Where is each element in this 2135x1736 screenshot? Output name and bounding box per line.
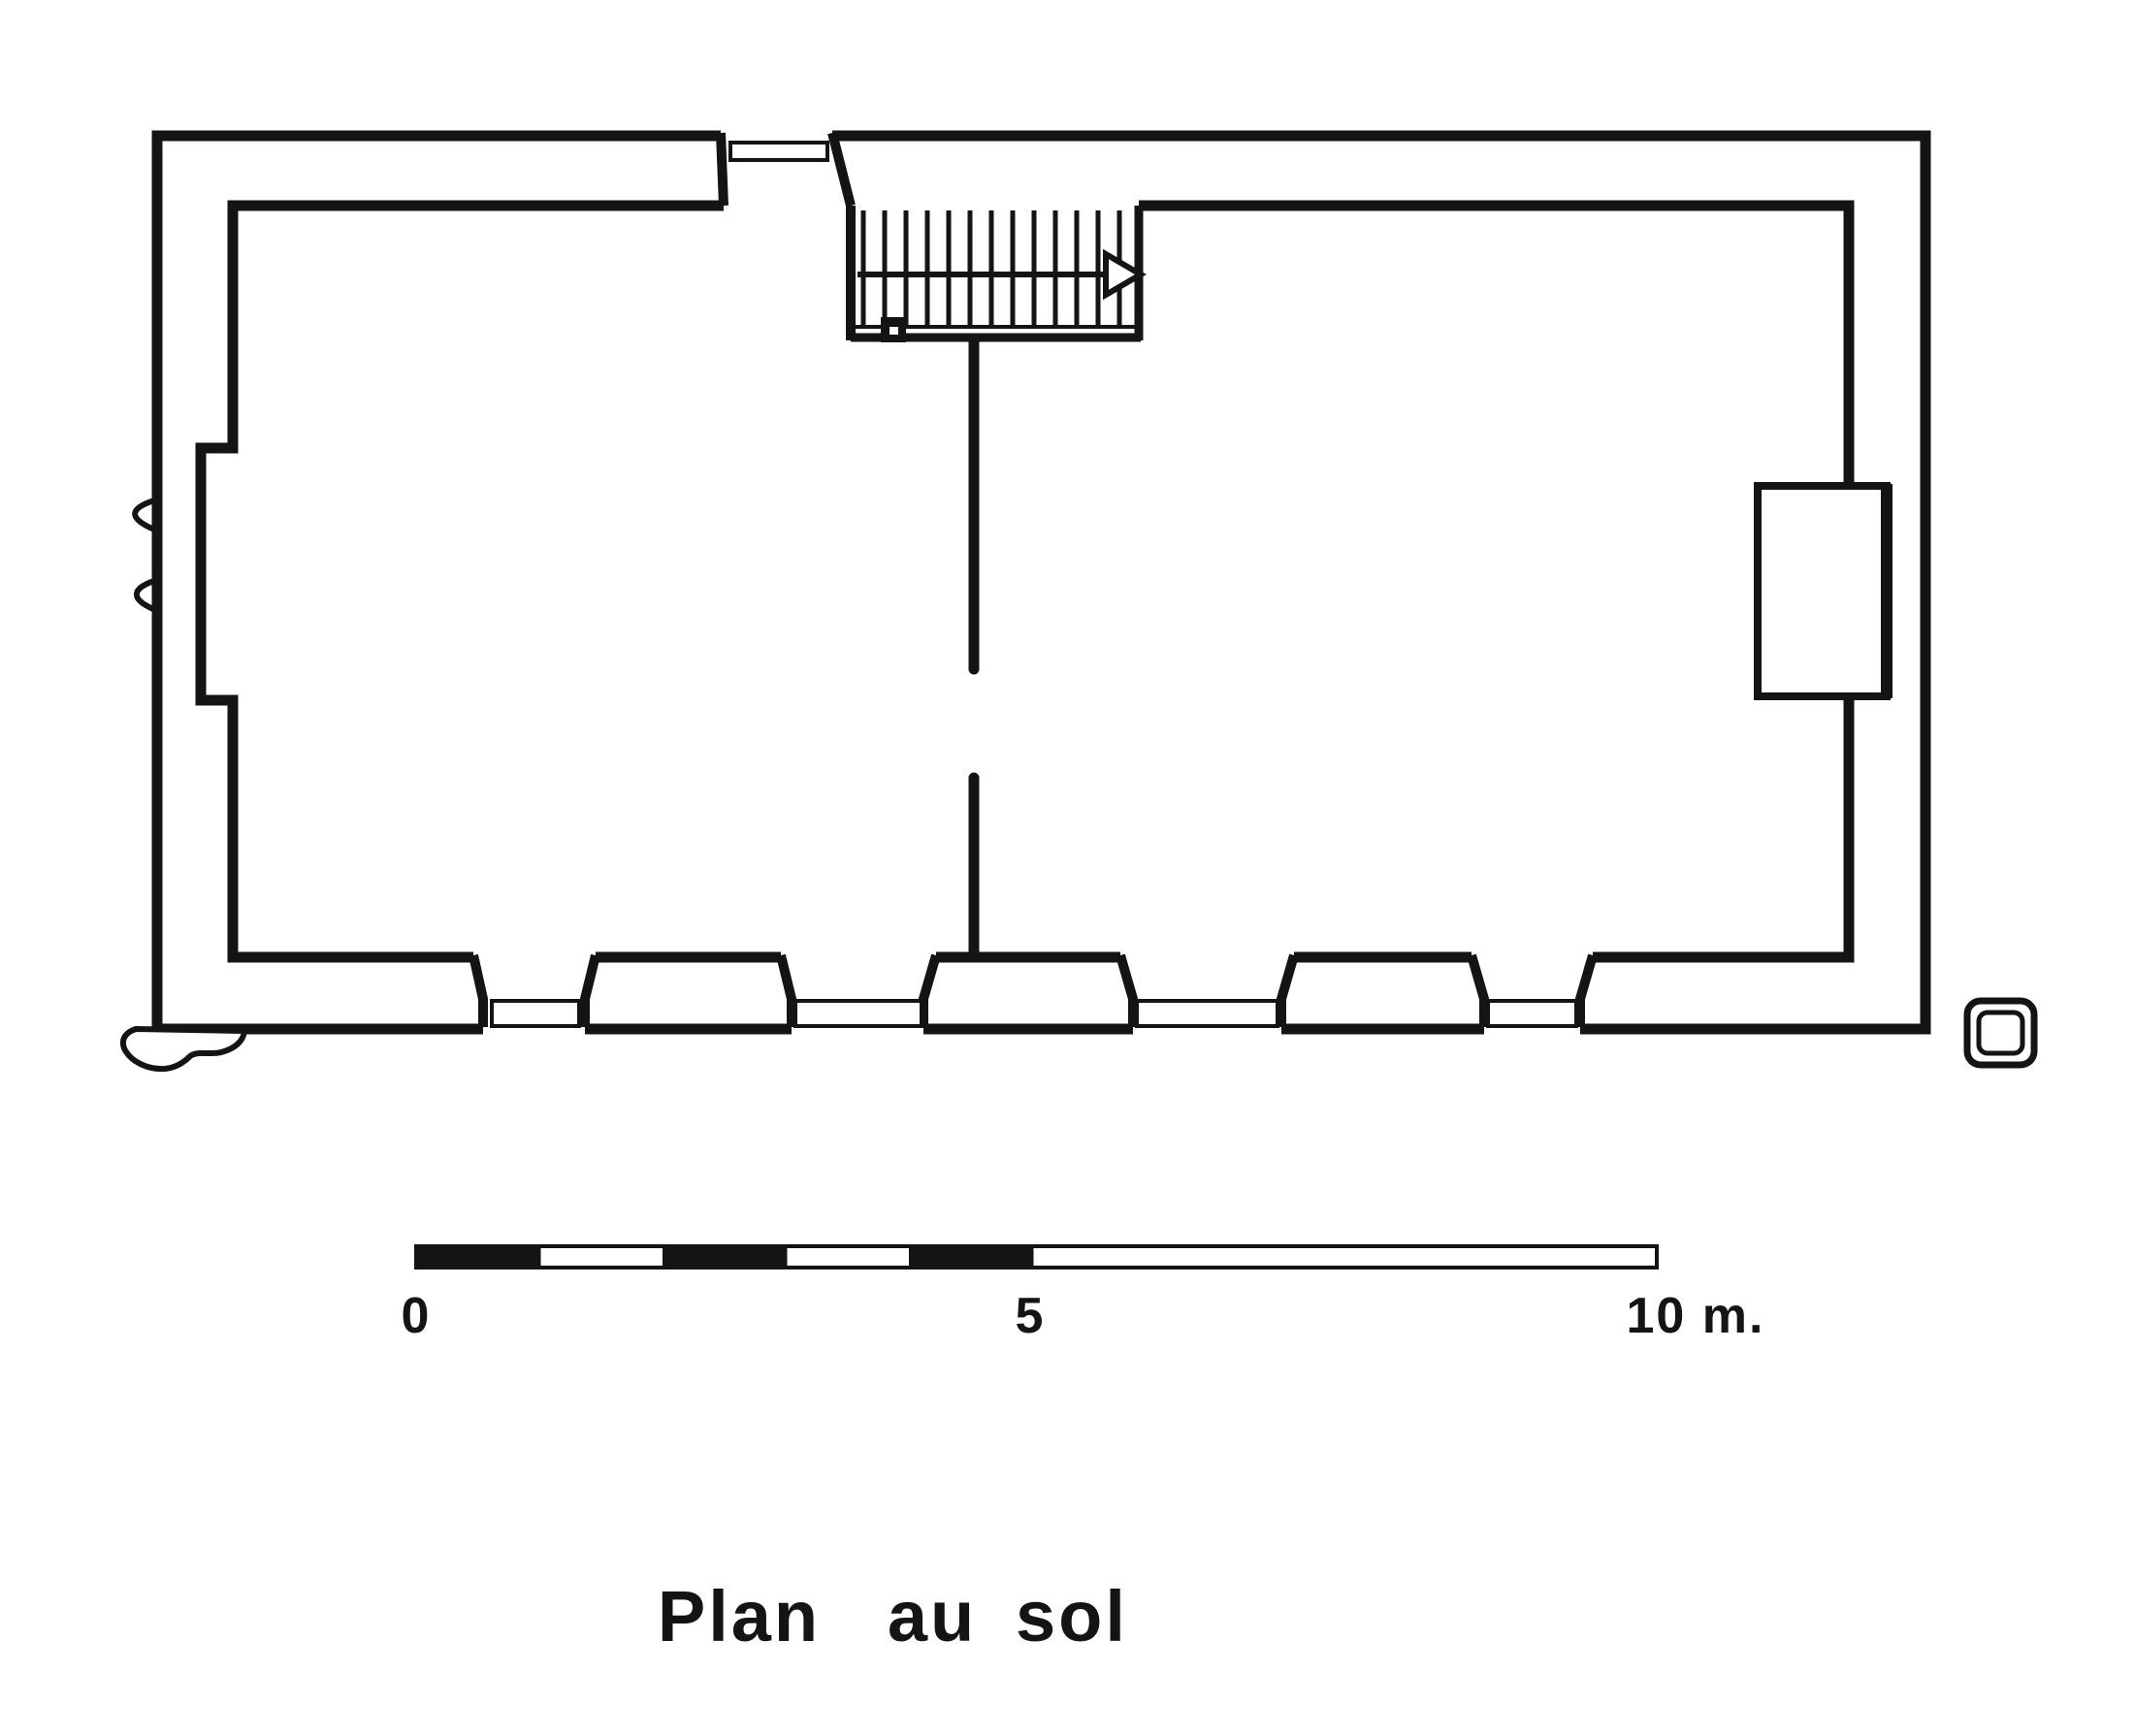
wall-marks xyxy=(135,500,154,609)
door-jamb-right xyxy=(832,133,851,206)
chevron-mark-icon xyxy=(137,581,154,609)
outer-wall xyxy=(157,136,1925,1029)
scale-bar-band xyxy=(416,1246,1657,1268)
entrance-door xyxy=(721,133,851,206)
scale-bar-segment-black xyxy=(909,1246,1032,1268)
title-word-2: au xyxy=(888,1576,977,1656)
staircase xyxy=(851,206,1141,342)
scale-bar: 0 5 10 m. xyxy=(402,1246,1765,1344)
window-4 xyxy=(1472,955,1593,1027)
window-reveal-right xyxy=(923,955,936,1027)
scale-label-10m: 10 m. xyxy=(1627,1288,1765,1344)
window-reveal-left xyxy=(473,955,483,1027)
outer-wall-left-run xyxy=(157,136,721,1029)
floor-plan-page: 0 5 10 m. Plan au sol xyxy=(0,0,2135,1736)
chimney-niche-box xyxy=(1758,486,1887,696)
window-reveal-right xyxy=(585,955,596,1027)
door-jamb-left xyxy=(721,133,724,206)
window-sill xyxy=(492,1001,579,1026)
window-reveal-left xyxy=(1120,955,1133,1027)
stair-treads xyxy=(863,210,1119,327)
window-3 xyxy=(1120,955,1294,1027)
window-sill xyxy=(795,1001,922,1026)
window-reveal-left xyxy=(781,955,792,1027)
scale-bar-segment-black xyxy=(663,1246,786,1268)
window-reveal-right xyxy=(1281,955,1294,1027)
scale-label-5: 5 xyxy=(1016,1288,1046,1344)
stair-newel-hole xyxy=(890,327,898,335)
corner-marker xyxy=(1967,1001,2034,1065)
boulder-outline xyxy=(123,1029,244,1069)
door-threshold xyxy=(730,143,827,160)
title-word-1: Plan xyxy=(658,1576,821,1656)
window-2 xyxy=(781,955,936,1027)
floor-plan-drawing: 0 5 10 m. Plan au sol xyxy=(0,0,2135,1736)
title-word-3: sol xyxy=(1016,1576,1128,1656)
inner-wall xyxy=(201,206,1849,957)
inner-wall-right-run xyxy=(1139,206,1849,957)
window-reveal-left xyxy=(1472,955,1484,1027)
chimney-niche xyxy=(1758,484,1887,698)
chevron-mark-icon xyxy=(135,500,154,530)
window-sill xyxy=(1137,1001,1278,1026)
scale-label-0: 0 xyxy=(402,1288,432,1344)
inner-wall-left-run xyxy=(201,206,724,957)
drawing-title: Plan au sol xyxy=(658,1576,1128,1656)
window-sill xyxy=(1488,1001,1576,1026)
window-1 xyxy=(473,955,596,1027)
window-reveal-right xyxy=(1580,955,1593,1027)
scale-bar-segment-black xyxy=(416,1246,539,1268)
